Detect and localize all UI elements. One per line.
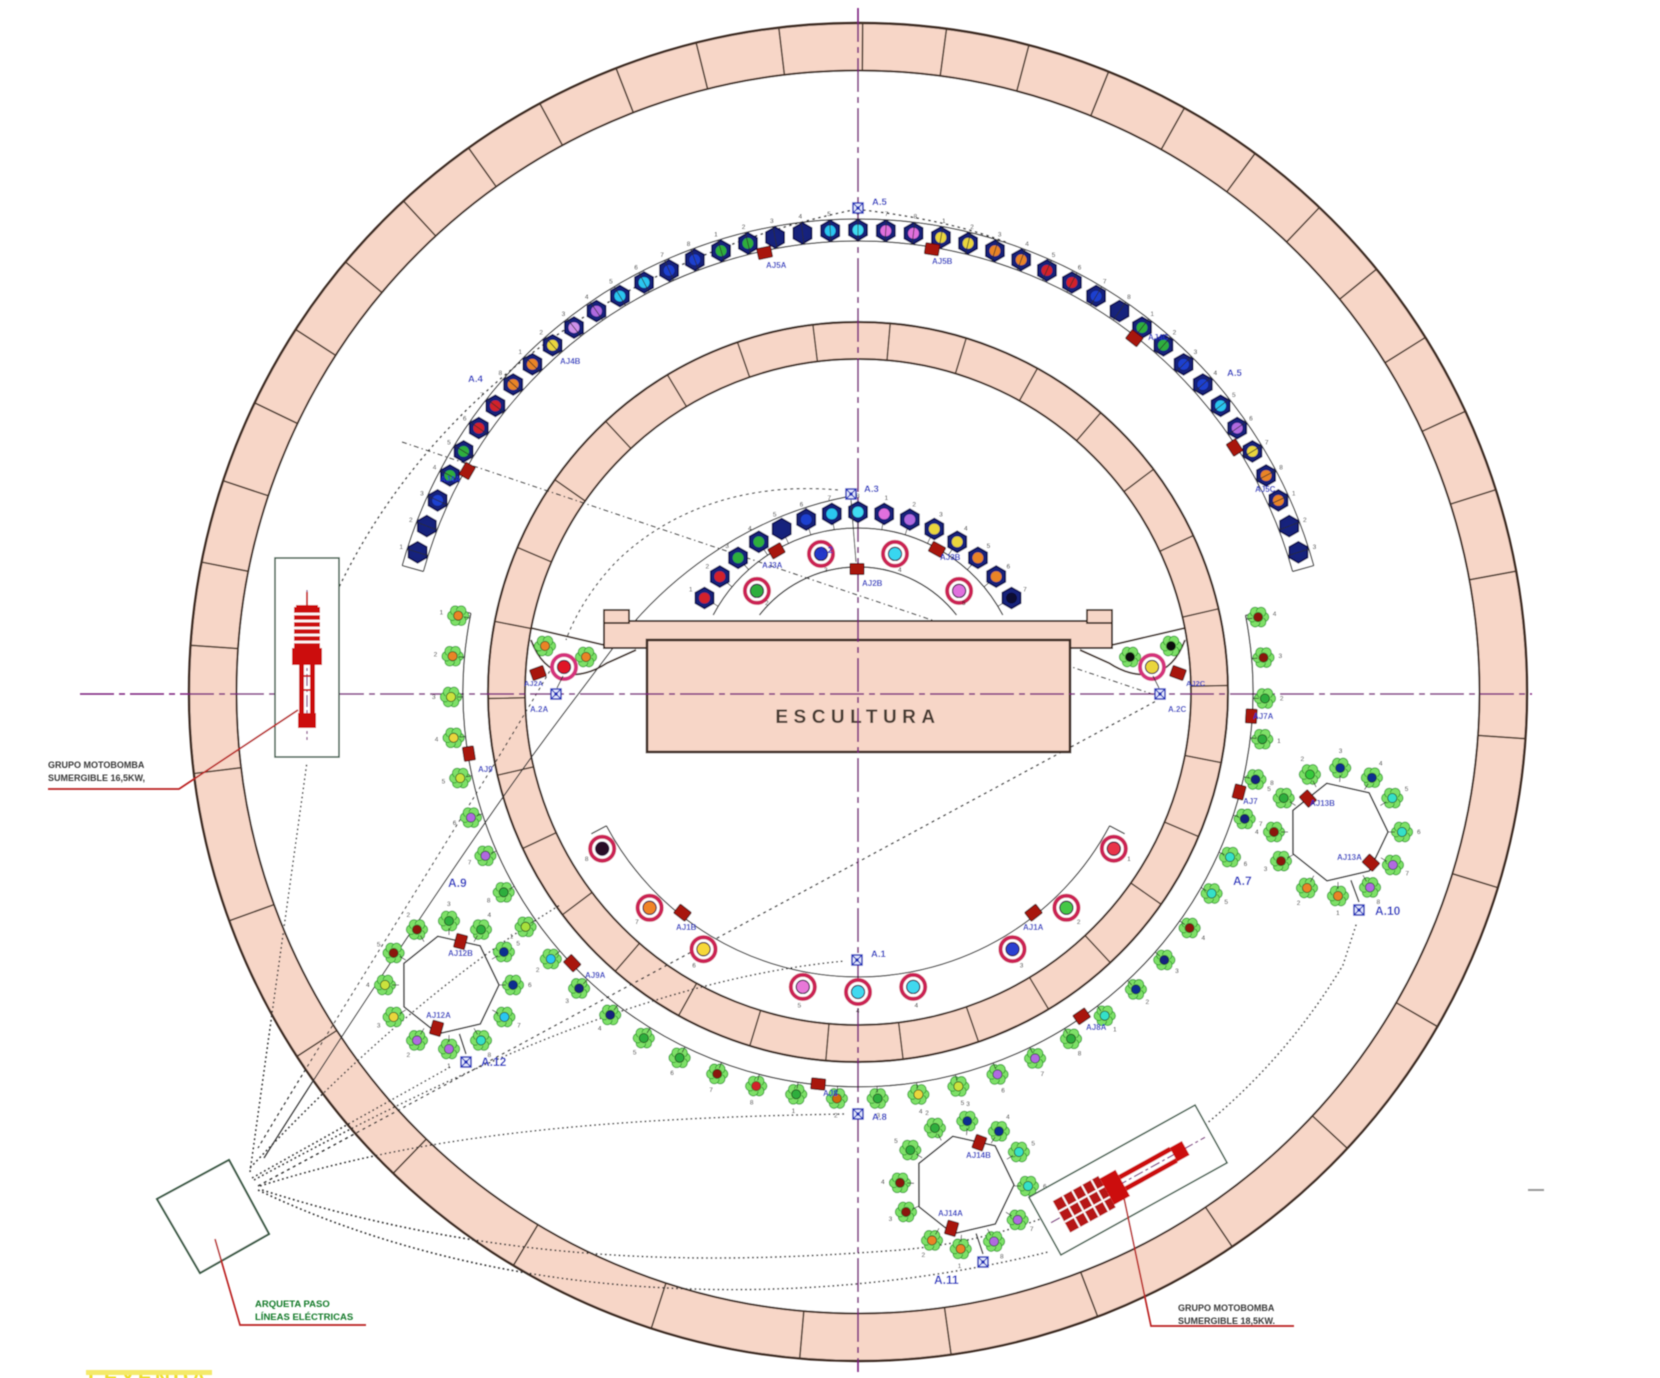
svg-text:ARQUETA PASO: ARQUETA PASO (255, 1299, 330, 1310)
svg-text:SUMERGIBLE 16,5KW,: SUMERGIBLE 16,5KW, (48, 773, 145, 783)
svg-text:8: 8 (499, 370, 503, 377)
svg-text:8: 8 (750, 1100, 754, 1107)
svg-text:AJ14A: AJ14A (938, 1209, 963, 1218)
svg-text:3: 3 (1313, 544, 1317, 551)
svg-text:6: 6 (1007, 563, 1011, 570)
svg-text:7: 7 (1023, 587, 1027, 594)
svg-text:2: 2 (1301, 756, 1305, 763)
svg-text:4: 4 (598, 1025, 602, 1032)
svg-text:AJ5B: AJ5B (932, 257, 953, 266)
svg-text:AJ3A: AJ3A (762, 561, 783, 570)
svg-text:7: 7 (1405, 871, 1409, 878)
svg-text:4: 4 (915, 1003, 919, 1010)
svg-text:AJ1A: AJ1A (1023, 923, 1044, 932)
svg-text:1: 1 (1277, 738, 1281, 745)
svg-text:2: 2 (407, 912, 411, 919)
svg-text:2: 2 (1173, 330, 1177, 337)
svg-text:4: 4 (964, 525, 968, 532)
svg-text:A.2: A.2 (818, 545, 833, 556)
svg-text:8: 8 (687, 241, 691, 248)
svg-text:5: 5 (798, 1003, 802, 1010)
svg-text:4: 4 (881, 1179, 885, 1186)
svg-text:5: 5 (377, 942, 381, 949)
svg-text:7: 7 (468, 860, 472, 867)
svg-text:3: 3 (889, 1216, 893, 1223)
svg-text:5: 5 (962, 600, 966, 607)
svg-text:8: 8 (1279, 465, 1283, 472)
svg-text:1: 1 (714, 232, 718, 239)
svg-text:3: 3 (770, 218, 774, 225)
svg-text:3: 3 (432, 694, 436, 701)
svg-text:4: 4 (488, 912, 492, 919)
svg-text:GRUPO MOTOBOMBA: GRUPO MOTOBOMBA (1178, 1303, 1275, 1313)
svg-text:A.4: A.4 (468, 374, 484, 385)
svg-text:1: 1 (958, 1263, 962, 1270)
svg-text:6: 6 (634, 264, 638, 271)
svg-text:A.5: A.5 (872, 197, 888, 208)
svg-text:1: 1 (510, 934, 514, 941)
svg-text:AJ4A: AJ4A (440, 475, 461, 484)
svg-text:AJ3B: AJ3B (940, 553, 961, 562)
svg-text:AJ7: AJ7 (1243, 797, 1258, 806)
svg-text:8: 8 (1078, 1050, 1082, 1057)
svg-text:6: 6 (1001, 1087, 1005, 1094)
svg-text:A.10: A.10 (1375, 904, 1401, 918)
svg-text:7: 7 (828, 495, 832, 502)
svg-text:6: 6 (463, 415, 467, 422)
svg-text:SUMERGIBLE 18,5KW.: SUMERGIBLE 18,5KW. (1178, 1316, 1275, 1326)
svg-text:AJ12B: AJ12B (448, 949, 473, 958)
svg-text:AJ2A: AJ2A (524, 679, 544, 688)
svg-text:8: 8 (1000, 1254, 1004, 1261)
svg-text:7: 7 (885, 211, 889, 218)
svg-text:3: 3 (1175, 968, 1179, 975)
svg-text:2: 2 (706, 563, 710, 570)
svg-text:4: 4 (433, 465, 437, 472)
svg-text:6: 6 (800, 501, 804, 508)
svg-text:6: 6 (670, 1070, 674, 1077)
svg-text:5: 5 (447, 440, 451, 447)
svg-text:5: 5 (827, 211, 831, 218)
svg-text:2: 2 (922, 1252, 926, 1259)
svg-text:A.2A: A.2A (530, 705, 548, 714)
svg-text:5: 5 (1031, 1140, 1035, 1147)
svg-text:2: 2 (912, 501, 916, 508)
svg-text:3: 3 (1194, 349, 1198, 356)
svg-text:5: 5 (961, 1100, 965, 1107)
svg-text:3: 3 (1339, 748, 1343, 755)
svg-text:A.11: A.11 (934, 1273, 959, 1287)
svg-text:1: 1 (1127, 856, 1131, 863)
svg-text:3: 3 (565, 998, 569, 1005)
svg-text:A.2C: A.2C (1168, 705, 1186, 714)
svg-text:4: 4 (898, 567, 902, 574)
svg-text:AJ4B: AJ4B (560, 357, 581, 366)
svg-text:2: 2 (1303, 517, 1307, 524)
svg-text:2: 2 (834, 1112, 838, 1119)
svg-text:7: 7 (1041, 1071, 1045, 1078)
svg-text:5: 5 (1267, 786, 1271, 793)
svg-text:AJ12A: AJ12A (426, 1011, 451, 1020)
svg-text:4: 4 (856, 1008, 860, 1015)
svg-text:4: 4 (435, 737, 439, 744)
svg-text:A.12: A.12 (481, 1055, 507, 1069)
svg-text:1: 1 (440, 610, 444, 617)
svg-text:3: 3 (377, 1023, 381, 1030)
svg-text:7: 7 (1030, 1226, 1034, 1233)
svg-text:5: 5 (442, 779, 446, 786)
svg-text:2: 2 (407, 1052, 411, 1059)
svg-text:6: 6 (1249, 415, 1253, 422)
svg-text:5: 5 (516, 940, 520, 947)
svg-text:1: 1 (1292, 490, 1296, 497)
svg-text:6: 6 (1244, 861, 1248, 868)
svg-text:1: 1 (885, 495, 889, 502)
svg-text:8: 8 (914, 214, 918, 221)
svg-text:3: 3 (966, 1101, 970, 1108)
svg-text:AJ4C: AJ4C (1148, 333, 1169, 342)
svg-text:4: 4 (1255, 829, 1259, 836)
svg-text:6: 6 (1078, 264, 1082, 271)
svg-text:LÍNEAS ELÉCTRICAS: LÍNEAS ELÉCTRICAS (255, 1312, 353, 1323)
svg-text:1: 1 (1150, 311, 1154, 318)
svg-text:1: 1 (399, 544, 403, 551)
svg-text:4: 4 (585, 294, 589, 301)
svg-text:AJ5C: AJ5C (1255, 485, 1276, 494)
svg-text:1: 1 (447, 1063, 451, 1070)
svg-text:3: 3 (824, 567, 828, 574)
svg-text:3: 3 (939, 512, 943, 519)
svg-text:1: 1 (1336, 910, 1340, 917)
svg-text:5: 5 (1405, 786, 1409, 793)
svg-text:4: 4 (366, 982, 370, 989)
svg-text:6: 6 (692, 963, 696, 970)
svg-text:1: 1 (518, 349, 522, 356)
svg-text:A.8: A.8 (872, 1112, 887, 1123)
svg-text:8: 8 (585, 856, 589, 863)
svg-text:5: 5 (1052, 252, 1056, 259)
svg-text:5: 5 (633, 1050, 637, 1057)
svg-text:7: 7 (1265, 440, 1269, 447)
svg-text:AJ1B: AJ1B (676, 923, 697, 932)
svg-text:4: 4 (748, 525, 752, 532)
svg-text:A.9: A.9 (448, 876, 467, 890)
svg-text:6: 6 (453, 820, 457, 827)
svg-text:A.7: A.7 (1233, 874, 1252, 888)
svg-text:3: 3 (725, 543, 729, 550)
svg-text:2: 2 (1297, 900, 1301, 907)
svg-text:AJ9A: AJ9A (585, 971, 606, 980)
svg-text:1: 1 (792, 1108, 796, 1115)
svg-text:3: 3 (998, 232, 1002, 239)
svg-text:3: 3 (420, 490, 424, 497)
svg-text:7: 7 (1259, 821, 1263, 828)
svg-text:1: 1 (1113, 1026, 1117, 1033)
svg-text:7: 7 (1103, 279, 1107, 286)
svg-text:4: 4 (1273, 611, 1277, 618)
svg-text:AJ13B: AJ13B (1310, 799, 1335, 808)
svg-text:AJ7A: AJ7A (1253, 712, 1274, 721)
svg-text:2: 2 (970, 224, 974, 231)
svg-text:5: 5 (773, 512, 777, 519)
svg-text:8: 8 (1127, 294, 1131, 301)
svg-text:2: 2 (1077, 919, 1081, 926)
svg-text:5: 5 (894, 1138, 898, 1145)
svg-text:2: 2 (1146, 999, 1150, 1006)
svg-text:3: 3 (1264, 866, 1268, 873)
svg-text:7: 7 (660, 252, 664, 259)
svg-text:2: 2 (539, 330, 543, 337)
svg-text:AJ2C: AJ2C (1186, 679, 1206, 688)
svg-text:5: 5 (609, 279, 613, 286)
svg-text:2: 2 (742, 224, 746, 231)
svg-text:7: 7 (635, 919, 639, 926)
svg-text:1: 1 (689, 587, 693, 594)
svg-text:AJ14B: AJ14B (966, 1151, 991, 1160)
svg-text:A.1: A.1 (871, 949, 887, 960)
svg-text:2: 2 (765, 600, 769, 607)
svg-text:5: 5 (1232, 392, 1236, 399)
svg-text:4: 4 (1006, 1114, 1010, 1121)
svg-text:3: 3 (447, 901, 451, 908)
svg-text:2: 2 (434, 652, 438, 659)
svg-text:7: 7 (480, 392, 484, 399)
svg-text:AJ2B: AJ2B (862, 579, 883, 588)
svg-text:7: 7 (709, 1087, 713, 1094)
svg-text:4: 4 (799, 214, 803, 221)
svg-text:3: 3 (1020, 963, 1024, 970)
svg-text:3: 3 (562, 311, 566, 318)
svg-text:6: 6 (1417, 829, 1421, 836)
svg-text:AJ8A: AJ8A (1086, 1023, 1107, 1032)
svg-text:4: 4 (1379, 760, 1383, 767)
svg-text:2: 2 (925, 1110, 929, 1117)
svg-text:4: 4 (1202, 935, 1206, 942)
svg-text:2: 2 (409, 517, 413, 524)
svg-text:4: 4 (1214, 370, 1218, 377)
svg-text:8: 8 (487, 898, 491, 905)
svg-text:2: 2 (1280, 696, 1284, 703)
svg-text:AJ5A: AJ5A (766, 261, 787, 270)
svg-text:1: 1 (942, 218, 946, 225)
svg-text:4: 4 (919, 1108, 923, 1115)
svg-text:A.3: A.3 (864, 484, 879, 495)
svg-text:A.5: A.5 (1227, 368, 1243, 379)
svg-text:AJ8: AJ8 (823, 1089, 838, 1098)
svg-text:4: 4 (1025, 241, 1029, 248)
svg-text:AJ13A: AJ13A (1337, 853, 1362, 862)
svg-text:5: 5 (1224, 899, 1228, 906)
svg-text:AJ9: AJ9 (478, 765, 493, 774)
svg-text:2: 2 (536, 967, 540, 974)
svg-text:7: 7 (517, 1023, 521, 1030)
svg-text:5: 5 (987, 543, 991, 550)
svg-text:3: 3 (1279, 653, 1283, 660)
svg-text:6: 6 (528, 982, 532, 989)
svg-text:GRUPO MOTOBOMBA: GRUPO MOTOBOMBA (48, 760, 145, 770)
